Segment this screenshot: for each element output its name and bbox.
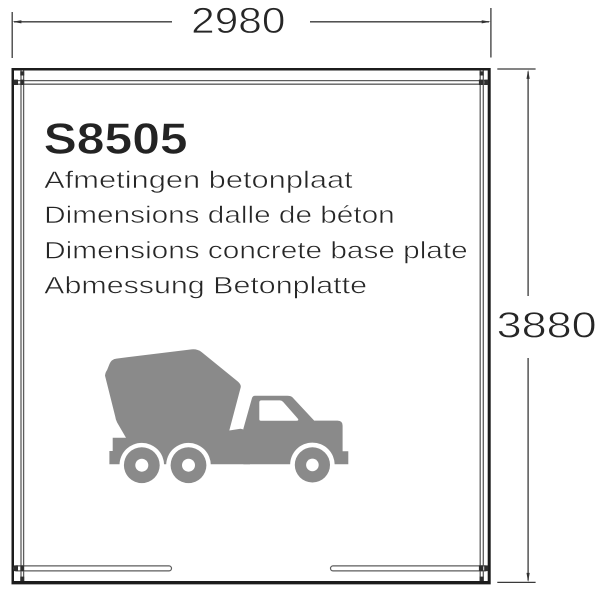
svg-text:Dimensions dalle de béton: Dimensions dalle de béton (44, 202, 395, 229)
svg-text:2980: 2980 (191, 0, 285, 41)
svg-text:3880: 3880 (497, 305, 597, 346)
svg-text:Dimensions concrete base plate: Dimensions concrete base plate (44, 237, 468, 264)
svg-text:Afmetingen betonplaat: Afmetingen betonplaat (44, 167, 353, 194)
svg-text:S8505: S8505 (44, 116, 188, 164)
svg-text:Abmessung Betonplatte: Abmessung Betonplatte (44, 273, 367, 300)
